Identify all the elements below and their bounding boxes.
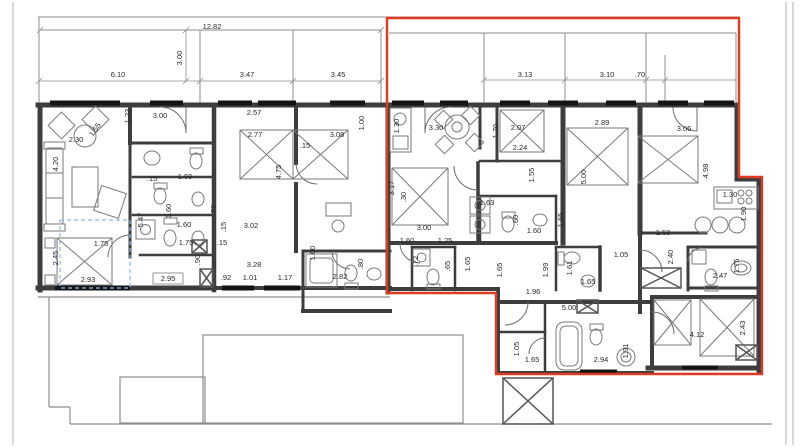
dim-label: 1.00 <box>357 116 366 131</box>
toilet <box>190 153 202 169</box>
dim-label: 2.47 <box>713 271 728 280</box>
dim-label: .15 <box>217 238 227 247</box>
dim-label: .30 <box>399 192 408 202</box>
dim-label: 1.60 <box>164 204 173 219</box>
sink <box>192 192 204 206</box>
dim-label: 1.17 <box>278 273 293 282</box>
dim-label: 1.01 <box>243 273 258 282</box>
sink <box>367 268 381 280</box>
dining-table <box>445 115 469 139</box>
windows-layer <box>50 101 734 374</box>
dim-label: .90 <box>193 255 202 265</box>
dim-label: 4.12 <box>690 330 705 339</box>
dim-label: 3.30 <box>429 123 444 132</box>
dim-label: 1.65 <box>495 263 504 278</box>
dim-label: 1.30 <box>723 190 738 199</box>
toilet <box>154 188 166 204</box>
dim-label: .76 <box>209 205 218 215</box>
dim-label: 1.60 <box>177 220 192 229</box>
dim-label: 1.61 <box>565 261 574 276</box>
dim-label: 1.30 <box>392 119 401 134</box>
dim-label: 3.00 <box>153 111 168 120</box>
dim-label: 1.91 <box>621 344 630 359</box>
dim-label: 1.60 <box>400 236 415 245</box>
floor-plan-canvas: 12.82 3.00 6.10 3.47 3.45 3.13 3.10 .70 … <box>0 0 800 447</box>
stool <box>712 217 728 233</box>
dim-label: 3.17 <box>387 181 396 196</box>
dim-label: 3.45 <box>331 70 346 79</box>
shaft-layer <box>192 240 757 424</box>
dim-label: 4.75 <box>274 165 283 180</box>
site-outline <box>38 297 772 424</box>
dim-label: 2.77 <box>248 130 263 139</box>
toilet <box>164 230 176 246</box>
dim-label: 1.99 <box>541 263 550 278</box>
dim-label: 2.45 <box>51 251 60 266</box>
dim-label: 1.75 <box>94 239 109 248</box>
dim-label: 6.10 <box>111 70 126 79</box>
dim-label: 1.05 <box>512 342 521 357</box>
toilet <box>427 269 439 285</box>
dim-label: 1.23 <box>123 109 132 124</box>
dim-label: 3.28 <box>247 260 262 269</box>
dim-label: 2.57 <box>247 108 262 117</box>
dimension-labels: 12.82 3.00 6.10 3.47 3.45 3.13 3.10 .70 … <box>51 22 748 364</box>
stool <box>695 217 711 233</box>
armchair <box>94 186 127 219</box>
dim-label: 1.00 <box>308 246 317 261</box>
dim-label: 1.65 <box>463 257 472 272</box>
dim-label: .92 <box>221 273 231 282</box>
toilet <box>590 329 602 345</box>
dim-label: .72 <box>411 256 420 266</box>
dim-label: 1.70 <box>491 124 500 139</box>
sink <box>192 231 204 245</box>
dim-label: 4.20 <box>51 157 60 172</box>
desk <box>326 203 351 216</box>
dim-label: 1.53 <box>656 228 671 237</box>
sink <box>533 214 547 226</box>
selected-unit-outline <box>387 18 762 374</box>
dim-label: 2.24 <box>513 143 528 152</box>
dim-label: 1.65 <box>556 213 565 228</box>
coffee-table <box>72 167 98 207</box>
dim-label: 3.00 <box>175 51 184 66</box>
dim-label: .70 <box>635 70 645 79</box>
dim-label: 12.82 <box>203 22 222 31</box>
dim-label: 1.63 <box>480 198 495 207</box>
dim-label: 2.82 <box>333 272 348 281</box>
dim-label: .15 <box>147 174 157 183</box>
dim-label: 1.65 <box>581 277 596 286</box>
dim-label: 2.89 <box>595 118 610 127</box>
dim-label: 1.75 <box>179 238 194 247</box>
dim-label: 2.43 <box>738 321 747 336</box>
dim-label: 2.30 <box>69 135 84 144</box>
dim-label: 5.47 <box>136 213 145 228</box>
dim-label: .15 <box>219 222 228 232</box>
dim-label: 2.95 <box>161 274 176 283</box>
dim-label: 2.94 <box>594 355 609 364</box>
dim-label: 4.98 <box>701 164 710 179</box>
dim-label: 5.00 <box>562 303 577 312</box>
dim-label: 2.93 <box>81 275 96 284</box>
dim-label: 2.07 <box>511 123 526 132</box>
terrace-lines <box>38 17 740 104</box>
dim-label: 3.00 <box>417 223 432 232</box>
dim-label: 1.65 <box>525 355 540 364</box>
dim-label: 1.90 <box>739 207 748 222</box>
sink <box>144 151 160 165</box>
dim-label: 3.47 <box>240 70 255 79</box>
dim-label: 3.08 <box>330 130 345 139</box>
dim-label: 1.75 <box>732 259 741 274</box>
dim-label: 3.13 <box>518 70 533 79</box>
floor-plan-viewport: 12.82 3.00 6.10 3.47 3.45 3.13 3.10 .70 … <box>0 0 800 447</box>
dim-label: 3.10 <box>600 70 615 79</box>
dim-label: 1.60 <box>527 226 542 235</box>
dim-label: 2.40 <box>666 250 675 265</box>
dim-label: 1.69 <box>178 172 193 181</box>
dim-label: .65 <box>443 261 452 271</box>
dim-label: 5.00 <box>579 170 588 185</box>
dim-label: .15 <box>300 141 310 150</box>
dim-label: 1.55 <box>87 121 103 138</box>
dim-label: 1.05 <box>614 250 629 259</box>
dim-label: .80 <box>356 259 365 269</box>
dim-label: 1.25 <box>438 236 453 245</box>
dim-label: .60 <box>511 215 520 225</box>
dim-label: 3.02 <box>244 221 259 230</box>
dim-label: 3.06 <box>677 124 692 133</box>
dim-label: 1.96 <box>526 287 541 296</box>
dim-label: 1.55 <box>527 168 536 183</box>
